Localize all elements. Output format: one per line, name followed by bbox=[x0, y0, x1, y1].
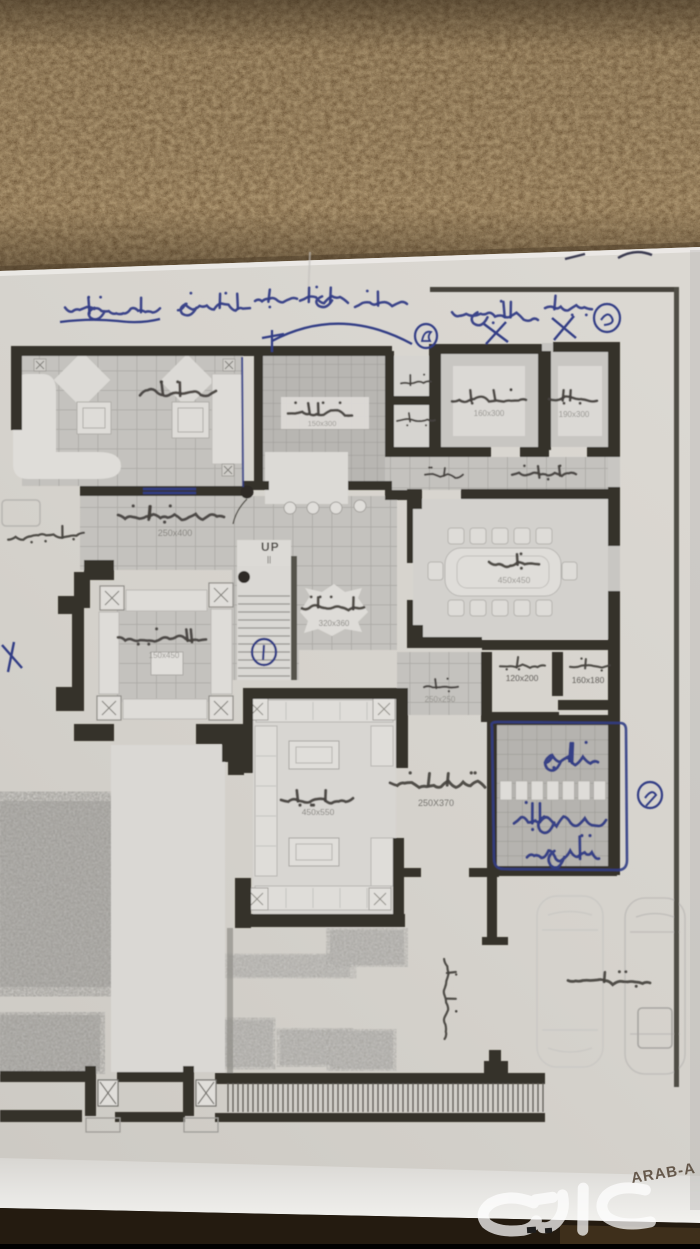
svg-text:320x360: 320x360 bbox=[319, 619, 350, 628]
svg-text:450x450: 450x450 bbox=[498, 575, 531, 585]
svg-text:150x450: 150x450 bbox=[149, 651, 180, 660]
svg-text:160x180: 160x180 bbox=[572, 675, 605, 685]
svg-text:250x400: 250x400 bbox=[158, 528, 193, 538]
svg-text:250x250: 250x250 bbox=[425, 695, 456, 704]
svg-text:||: || bbox=[267, 555, 271, 564]
svg-text:250X370: 250X370 bbox=[418, 798, 454, 808]
svg-text:160x300: 160x300 bbox=[474, 409, 505, 418]
svg-text:190x300: 190x300 bbox=[559, 410, 590, 419]
svg-text:450x550: 450x550 bbox=[302, 807, 335, 817]
svg-text:UP: UP bbox=[261, 540, 280, 554]
svg-text:150x300: 150x300 bbox=[308, 419, 337, 428]
svg-text:120x200: 120x200 bbox=[506, 673, 539, 683]
